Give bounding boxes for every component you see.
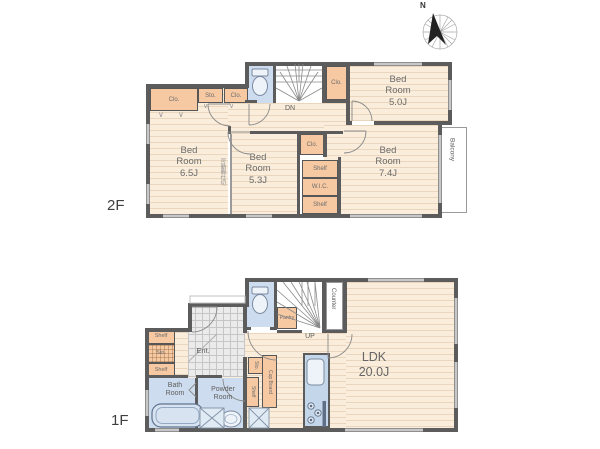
shelf-label: Shelf: [250, 386, 255, 397]
room-label-bath: Bath Room: [160, 382, 190, 398]
wall-segment: [188, 303, 249, 307]
room-label-bedroom-se: Bed Room 7.4J: [366, 145, 410, 179]
floorplan-canvas: Clo. Sto. Clo. Clo. Clo. Shelf W.I.C. Sh…: [0, 0, 600, 449]
wall-segment: [346, 62, 350, 125]
pantry-box: Pantry: [277, 307, 297, 329]
wall-segment: [338, 157, 341, 214]
movable-partition: [230, 134, 232, 214]
wall-segment: [322, 282, 326, 330]
ldk-kitchen-floor: [245, 333, 346, 428]
wall-segment: [323, 134, 327, 157]
closet-label: Clo.: [231, 93, 242, 99]
room-label-bedroom-ne: Bed Room 5.0J: [376, 74, 420, 108]
entrance-label: Ent.: [192, 347, 214, 356]
storage-label: Sto.: [253, 361, 258, 370]
wall-segment: [145, 328, 149, 432]
hanger-mark: ∨: [158, 111, 164, 119]
hanger-mark: ∨: [203, 103, 208, 110]
closet-label: Clo.: [307, 142, 318, 148]
pantry-label: Pantry: [280, 316, 294, 321]
window: [155, 428, 179, 432]
hanger-mark: ∨: [178, 111, 184, 119]
window: [374, 62, 422, 66]
shelf-label: Shelf: [313, 166, 327, 172]
wall-segment: [147, 375, 188, 378]
toilet-room-2f: [247, 66, 273, 103]
window: [454, 298, 458, 344]
balcony-label: Balcony: [448, 138, 455, 198]
window: [246, 214, 272, 218]
wall-segment: [195, 378, 198, 428]
cupboard-box: Cup Board: [262, 355, 277, 408]
shelf-label: Shelf: [155, 368, 168, 374]
wic-label: W.I.C.: [312, 184, 328, 190]
wall-segment: [188, 303, 192, 332]
entrance-tile: [188, 307, 245, 377]
storage-box: Sto.: [198, 88, 223, 103]
hanger-mark: ∨: [229, 103, 234, 110]
counter-label: Counter: [329, 288, 336, 328]
kitchen-unit: [303, 353, 330, 428]
wall-segment: [245, 62, 249, 88]
window: [368, 278, 424, 282]
balcony-sliding-door: [438, 135, 442, 203]
wall-segment: [297, 131, 300, 214]
window: [145, 390, 149, 416]
closet-box: Clo.: [150, 88, 198, 111]
wall-segment: [274, 282, 277, 330]
shelf-box: Shelf: [302, 160, 338, 178]
wall-segment: [145, 328, 192, 332]
wic-box: W.I.C.: [302, 178, 338, 196]
wall-segment: [322, 62, 326, 103]
wall-segment: [243, 357, 247, 428]
cupboard-label: Cup Board: [267, 370, 272, 394]
stairs-up-label: UP: [300, 333, 320, 341]
shelf-box: Shelf: [302, 196, 338, 214]
stairs-down-label: DN: [280, 105, 300, 113]
storage-box: Sto.: [147, 344, 175, 363]
closet-box: Clo.: [300, 134, 324, 155]
floor-tag-1f: 1F: [111, 412, 129, 429]
window: [345, 428, 423, 432]
wall-segment: [343, 282, 347, 333]
shelf-box: Shelf: [246, 377, 259, 407]
partition-note-label: 可動間仕切: [219, 158, 225, 208]
window: [350, 214, 422, 218]
window: [146, 124, 150, 144]
wall-segment: [146, 84, 249, 88]
wall-segment: [245, 278, 249, 307]
window: [454, 362, 458, 408]
wall-segment: [273, 62, 276, 103]
room-label-bedroom-c: Bed Room 5.3J: [236, 152, 280, 186]
wall-segment: [277, 330, 302, 333]
wall-segment: [245, 100, 257, 103]
closet-box: Clo.: [326, 66, 347, 100]
closet-label: Clo.: [169, 97, 180, 103]
toilet-room-1f: [247, 282, 274, 327]
wall-segment: [300, 131, 343, 134]
shelf-label: Shelf: [155, 334, 168, 340]
room-label-bedroom-w: Bed Room 6.5J: [167, 145, 211, 179]
wall-segment: [245, 327, 251, 330]
compass-icon: [423, 15, 457, 49]
wall-segment: [324, 100, 350, 103]
wall-segment: [228, 126, 231, 134]
wall-segment: [270, 327, 277, 330]
wall-segment: [322, 330, 347, 333]
wall-segment: [374, 121, 452, 125]
storage-box: Sto.: [248, 357, 263, 374]
window: [146, 184, 150, 204]
storage-label: Sto.: [156, 351, 166, 357]
stairs-2f: [276, 66, 322, 103]
storage-label: Sto.: [205, 93, 216, 99]
window: [448, 80, 452, 110]
wall-segment: [196, 375, 222, 378]
porch-outline: [190, 296, 245, 303]
closet-label: Clo.: [331, 80, 342, 86]
floor-tag-2f: 2F: [107, 197, 125, 214]
compass-north-label: N: [420, 1, 426, 10]
window: [163, 214, 189, 218]
shelf-label: Shelf: [313, 202, 327, 208]
wall-segment: [346, 121, 352, 125]
compass-needle-icon: [428, 13, 446, 45]
wall-segment: [250, 131, 300, 134]
room-label-powder: Powder Room: [204, 386, 242, 402]
room-label-ldk: LDK 20.0J: [344, 350, 404, 380]
